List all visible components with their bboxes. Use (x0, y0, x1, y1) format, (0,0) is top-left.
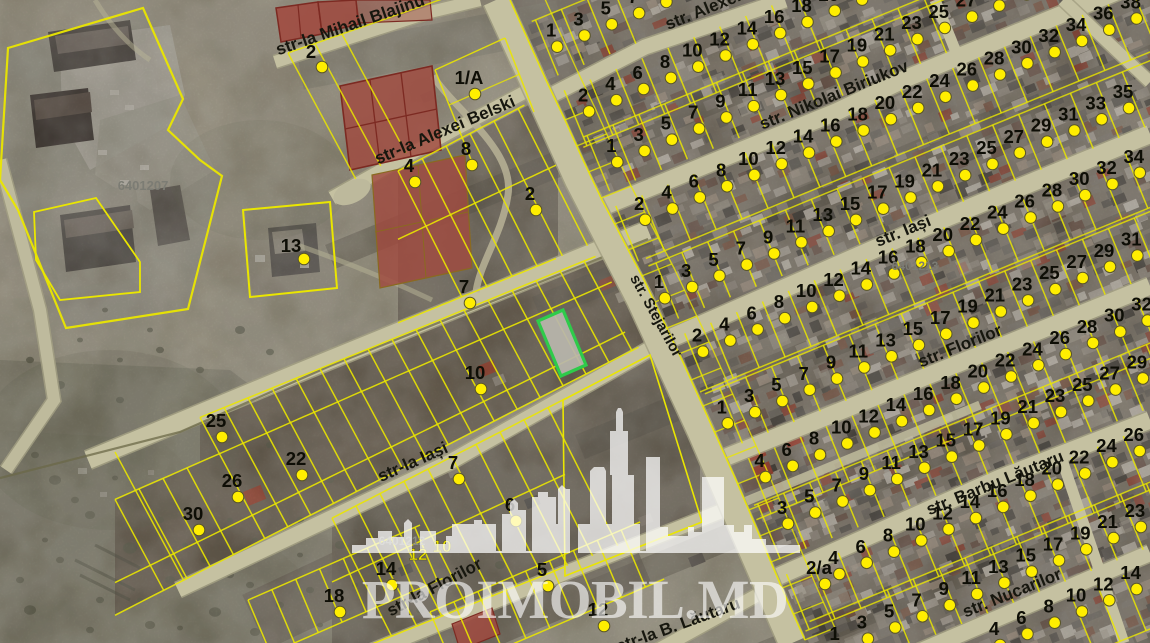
svg-text:25: 25 (1039, 262, 1060, 283)
svg-text:6401213: 6401213 (892, 259, 939, 273)
svg-text:21: 21 (985, 285, 1006, 306)
svg-text:11: 11 (738, 79, 758, 100)
svg-text:14: 14 (793, 126, 814, 147)
svg-text:20: 20 (968, 361, 989, 382)
svg-text:4: 4 (719, 314, 730, 335)
svg-text:7: 7 (628, 0, 638, 7)
svg-text:6: 6 (1016, 607, 1026, 628)
svg-text:14: 14 (851, 258, 872, 279)
svg-text:8: 8 (809, 428, 819, 449)
svg-text:5: 5 (884, 601, 894, 622)
svg-text:18: 18 (940, 372, 961, 393)
svg-text:35: 35 (1113, 81, 1134, 102)
svg-text:27: 27 (1004, 126, 1025, 147)
svg-text:32: 32 (1096, 157, 1117, 178)
svg-text:23: 23 (1012, 273, 1033, 294)
svg-text:1: 1 (654, 271, 664, 292)
svg-text:20: 20 (875, 92, 896, 113)
svg-text:5: 5 (601, 0, 611, 18)
svg-text:20: 20 (819, 0, 840, 5)
svg-text:4: 4 (989, 618, 1000, 639)
svg-text:13: 13 (988, 556, 1009, 577)
svg-text:11: 11 (849, 340, 869, 361)
svg-text:24: 24 (987, 202, 1008, 223)
svg-text:32: 32 (1131, 294, 1150, 315)
svg-text:1: 1 (717, 396, 727, 417)
svg-text:8: 8 (883, 525, 893, 546)
svg-text:9: 9 (826, 352, 836, 373)
svg-text:21: 21 (922, 159, 943, 180)
svg-text:23: 23 (949, 148, 970, 169)
svg-text:9: 9 (859, 463, 869, 484)
svg-text:1: 1 (546, 20, 556, 41)
svg-text:15: 15 (1015, 545, 1036, 566)
svg-text:3: 3 (777, 497, 787, 518)
svg-text:38: 38 (1120, 0, 1141, 13)
svg-text:1: 1 (829, 623, 839, 643)
svg-text:15: 15 (936, 430, 957, 451)
svg-text:3: 3 (857, 612, 867, 633)
svg-text:36: 36 (1093, 3, 1114, 24)
svg-text:30: 30 (1011, 36, 1032, 57)
svg-text:19: 19 (894, 171, 915, 192)
svg-text:7: 7 (831, 474, 841, 495)
svg-text:22: 22 (1069, 446, 1090, 467)
svg-text:1/A: 1/A (455, 67, 484, 88)
svg-text:7: 7 (459, 276, 469, 297)
svg-text:29: 29 (1094, 240, 1115, 261)
svg-text:19: 19 (990, 407, 1011, 428)
svg-text:6: 6 (856, 536, 866, 557)
svg-text:22: 22 (286, 448, 307, 469)
svg-text:5: 5 (771, 374, 781, 395)
svg-text:25: 25 (206, 410, 227, 431)
svg-text:28: 28 (1077, 316, 1098, 337)
svg-text:22: 22 (995, 350, 1016, 371)
svg-text:34: 34 (1066, 14, 1087, 35)
svg-text:8: 8 (716, 159, 726, 180)
svg-text:9: 9 (715, 90, 725, 111)
svg-text:30: 30 (1069, 168, 1090, 189)
svg-text:14: 14 (1120, 562, 1141, 583)
svg-text:25: 25 (976, 137, 997, 158)
svg-text:5: 5 (708, 249, 718, 270)
svg-text:30: 30 (183, 503, 204, 524)
svg-text:2/a: 2/a (806, 557, 832, 578)
svg-text:23: 23 (1045, 385, 1066, 406)
svg-text:13: 13 (908, 441, 929, 462)
svg-text:6: 6 (782, 439, 792, 460)
svg-text:27: 27 (1066, 251, 1087, 272)
svg-text:6: 6 (633, 62, 643, 83)
svg-text:16: 16 (820, 115, 841, 136)
svg-text:25: 25 (1072, 374, 1093, 395)
svg-text:31: 31 (1058, 104, 1079, 125)
svg-text:27: 27 (1099, 363, 1120, 384)
svg-text:8: 8 (774, 291, 784, 312)
svg-text:32: 32 (1038, 25, 1059, 46)
svg-text:2: 2 (578, 84, 588, 105)
svg-text:17: 17 (1043, 533, 1064, 554)
svg-text:10: 10 (1066, 585, 1087, 606)
svg-text:23: 23 (901, 12, 922, 33)
svg-text:33: 33 (1085, 92, 1106, 113)
svg-text:18: 18 (324, 585, 345, 606)
svg-text:21: 21 (1097, 511, 1118, 532)
svg-text:2: 2 (692, 325, 702, 346)
svg-text:16: 16 (764, 6, 785, 27)
svg-text:6: 6 (746, 302, 756, 323)
svg-text:12: 12 (1093, 573, 1114, 594)
svg-text:7: 7 (736, 238, 746, 259)
svg-text:18: 18 (847, 103, 868, 124)
svg-text:4: 4 (404, 155, 415, 176)
svg-text:16: 16 (913, 383, 934, 404)
svg-text:3: 3 (633, 124, 643, 145)
svg-text:22: 22 (902, 81, 923, 102)
svg-text:12: 12 (709, 29, 730, 50)
svg-text:12: 12 (858, 405, 879, 426)
svg-text:13: 13 (281, 235, 302, 256)
svg-text:7: 7 (799, 363, 809, 384)
svg-text:5: 5 (661, 113, 671, 134)
svg-text:3: 3 (744, 385, 754, 406)
svg-text:10: 10 (465, 362, 486, 383)
svg-text:19: 19 (957, 296, 978, 317)
svg-text:27: 27 (956, 0, 977, 11)
svg-text:10: 10 (682, 40, 703, 61)
svg-text:21: 21 (874, 23, 895, 44)
svg-text:24: 24 (929, 70, 950, 91)
svg-text:9: 9 (939, 578, 949, 599)
svg-text:1: 1 (606, 135, 616, 156)
svg-text:18: 18 (791, 0, 812, 16)
svg-text:8: 8 (1044, 596, 1054, 617)
svg-text:25: 25 (929, 1, 950, 22)
svg-text:24: 24 (1096, 435, 1117, 456)
svg-text:12: 12 (765, 137, 786, 158)
svg-text:11: 11 (881, 452, 901, 473)
svg-text:3: 3 (573, 9, 583, 30)
svg-text:2: 2 (634, 193, 644, 214)
svg-text:26: 26 (957, 59, 978, 80)
svg-text:17: 17 (819, 46, 840, 67)
svg-text:10: 10 (905, 514, 926, 535)
svg-text:30: 30 (1104, 305, 1125, 326)
svg-text:4: 4 (661, 182, 672, 203)
svg-text:14: 14 (886, 394, 907, 415)
svg-text:26: 26 (222, 470, 243, 491)
svg-text:11: 11 (961, 567, 981, 588)
svg-text:29: 29 (1127, 351, 1148, 372)
svg-text:3: 3 (681, 260, 691, 281)
svg-text:PROIMOBIL.MD: PROIMOBIL.MD (362, 569, 788, 630)
svg-text:13: 13 (765, 68, 786, 89)
svg-text:34: 34 (1124, 146, 1145, 167)
svg-text:13: 13 (875, 329, 896, 350)
svg-text:21: 21 (1017, 396, 1038, 417)
svg-text:26: 26 (1014, 191, 1035, 212)
svg-text:17: 17 (963, 419, 984, 440)
svg-text:28: 28 (1042, 179, 1063, 200)
svg-text:28: 28 (984, 48, 1005, 69)
svg-text:19: 19 (1070, 522, 1091, 543)
svg-text:17: 17 (930, 307, 951, 328)
svg-text:2: 2 (525, 183, 535, 204)
svg-text:7: 7 (911, 589, 921, 610)
svg-text:26: 26 (1049, 327, 1070, 348)
svg-text:15: 15 (903, 318, 924, 339)
svg-text:4: 4 (605, 73, 616, 94)
svg-text:24: 24 (1022, 338, 1043, 359)
svg-text:6401207: 6401207 (118, 178, 169, 193)
svg-text:26: 26 (1123, 424, 1144, 445)
svg-text:4: 4 (754, 450, 765, 471)
svg-text:20: 20 (932, 224, 953, 245)
svg-text:22: 22 (960, 213, 981, 234)
svg-text:15: 15 (840, 193, 861, 214)
svg-text:9: 9 (763, 227, 773, 248)
svg-text:11: 11 (786, 215, 806, 236)
svg-text:10: 10 (738, 148, 759, 169)
svg-text:17: 17 (867, 182, 888, 203)
svg-text:14: 14 (737, 17, 758, 38)
svg-text:19: 19 (847, 35, 868, 56)
svg-text:6: 6 (689, 170, 699, 191)
svg-text:12: 12 (823, 269, 844, 290)
svg-text:7: 7 (688, 102, 698, 123)
svg-text:8: 8 (660, 51, 670, 72)
svg-text:15: 15 (792, 57, 813, 78)
svg-text:23: 23 (1125, 500, 1146, 521)
svg-text:10: 10 (796, 280, 817, 301)
svg-text:10: 10 (831, 417, 852, 438)
svg-text:8: 8 (461, 138, 471, 159)
svg-text:31: 31 (1121, 229, 1142, 250)
svg-text:5: 5 (804, 486, 814, 507)
svg-text:13: 13 (812, 204, 833, 225)
svg-text:29: 29 (1031, 115, 1052, 136)
